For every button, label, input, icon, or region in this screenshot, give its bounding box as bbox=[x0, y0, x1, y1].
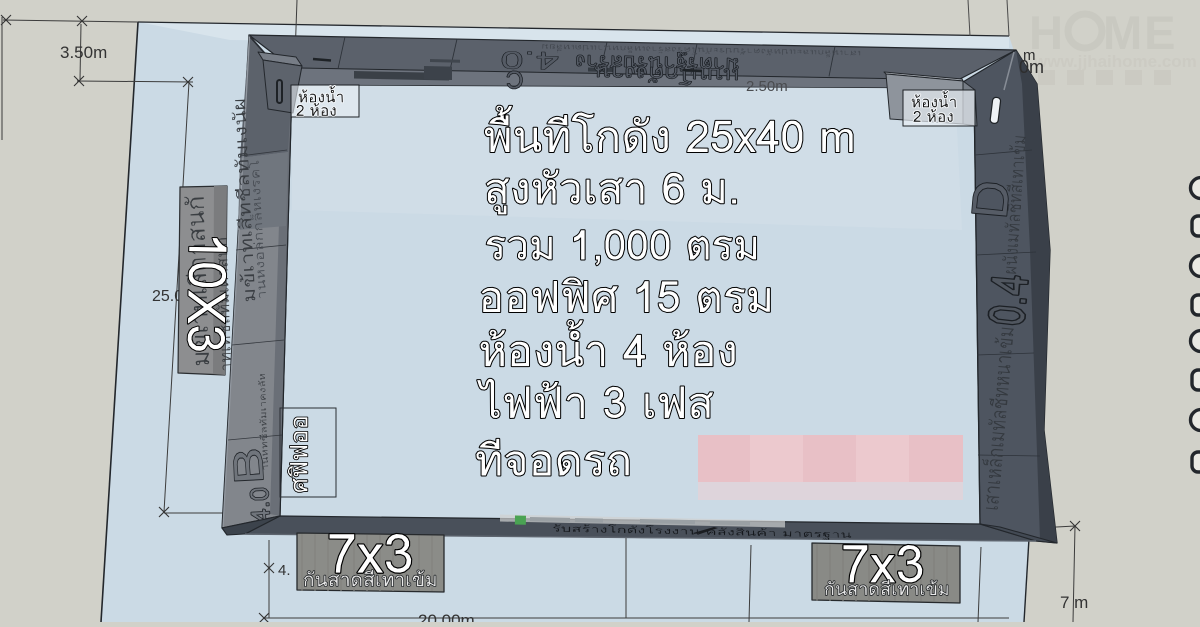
svg-text:2.50m: 2.50m bbox=[746, 78, 788, 95]
svg-text:4.: 4. bbox=[278, 562, 291, 579]
svg-text:20.00m: 20.00m bbox=[418, 611, 475, 622]
svg-text:0m: 0m bbox=[1019, 57, 1044, 77]
svg-text:7 m: 7 m bbox=[1060, 593, 1088, 612]
svg-text:www.jjhaihome.com: www.jjhaihome.com bbox=[1033, 52, 1197, 71]
svg-text:3.50m: 3.50m bbox=[60, 43, 107, 62]
